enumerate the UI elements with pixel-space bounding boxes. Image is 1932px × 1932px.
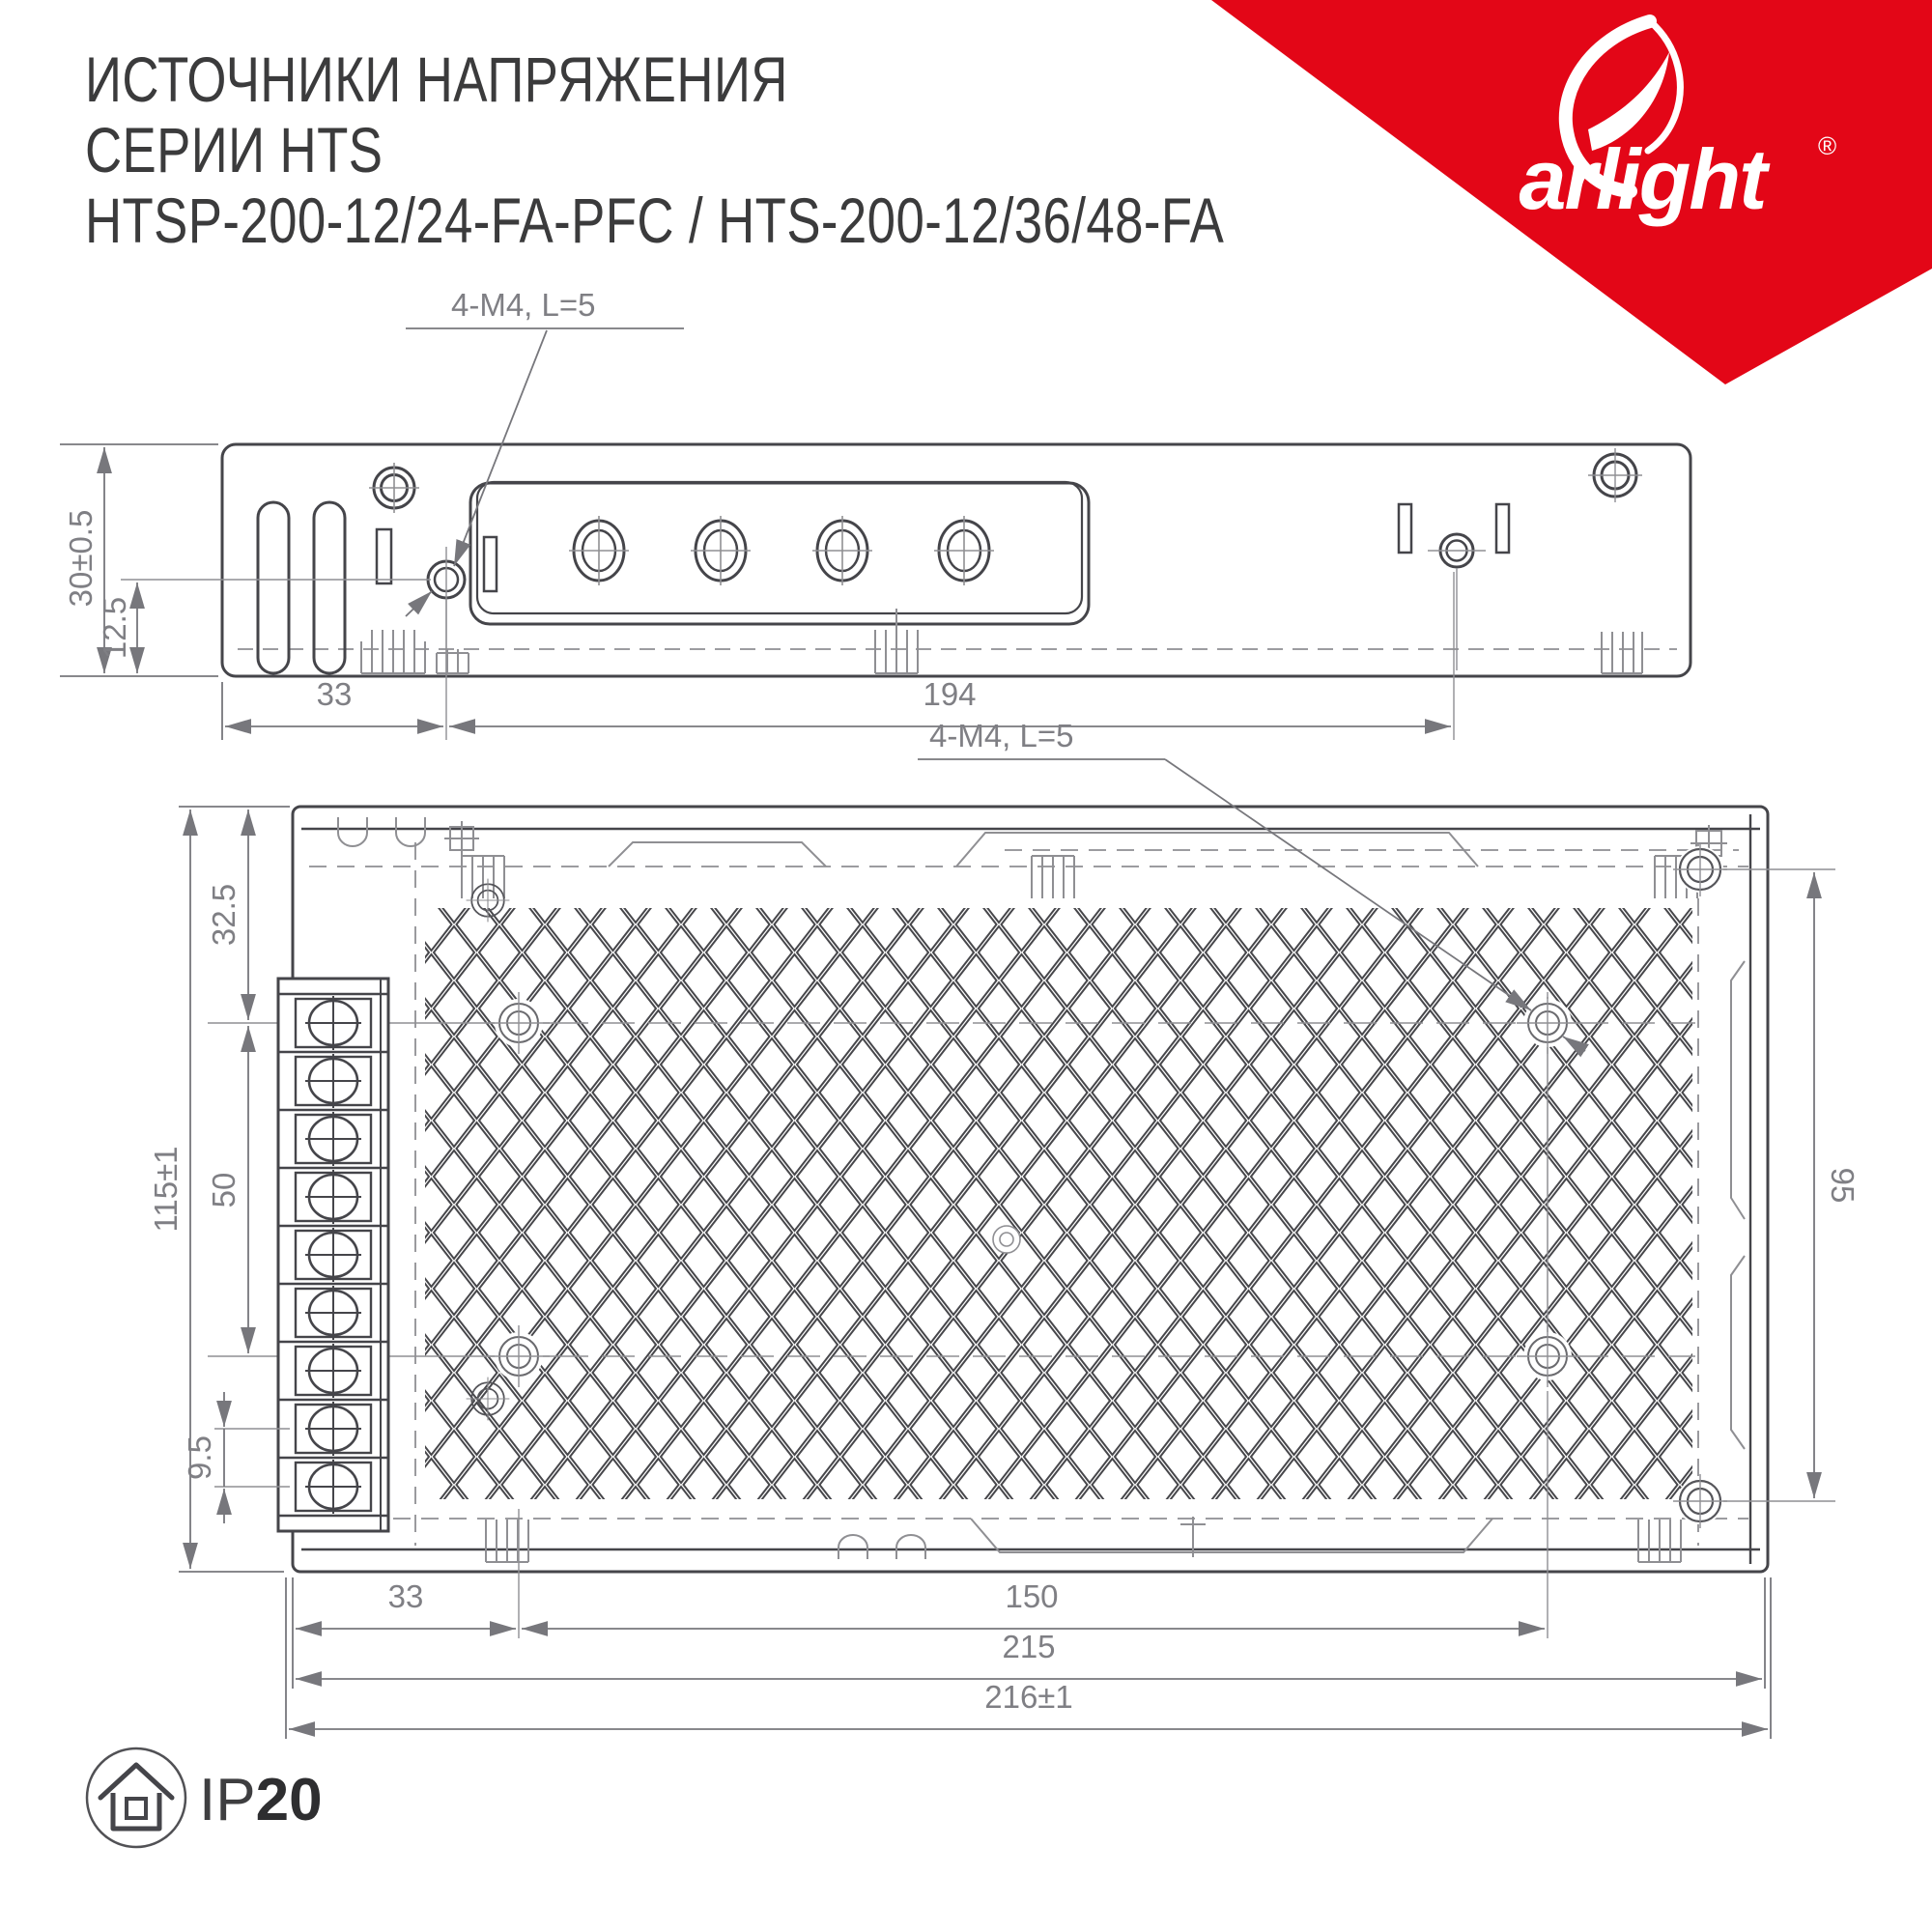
dim-top-offset: 32.5 (206, 884, 241, 946)
dim-top-height: 115±1 (148, 1146, 184, 1232)
dim-body-width: 215 (1002, 1629, 1055, 1664)
dim-side-screw-span: 194 (923, 676, 976, 712)
terminal-block (278, 979, 388, 1531)
top-screw-callout-label: 4-M4, L=5 (929, 718, 1074, 753)
dim-right-span: 95 (1825, 1168, 1861, 1204)
dim-side-height: 30±0.5 (63, 510, 99, 608)
technical-drawing: 30±0.5 12.5 33 194 4-M4, L=5 (0, 0, 1932, 1932)
ip-prefix: IP (199, 1767, 256, 1833)
vent-mesh (425, 908, 1692, 1499)
side-view-drawing: 30±0.5 12.5 33 194 4-M4, L=5 (60, 287, 1690, 740)
dim-side-screw-to-bottom: 12.5 (97, 597, 132, 659)
dim-edge-to-col1: 33 (388, 1578, 424, 1614)
ip-rating-badge: IP20 (87, 1748, 323, 1847)
dim-row-span: 50 (206, 1173, 241, 1208)
ip-value: 20 (256, 1767, 323, 1833)
indoor-house-icon (100, 1765, 172, 1829)
dim-terminal-pitch: 9.5 (182, 1435, 217, 1480)
datasheet-page: ИСТОЧНИКИ НАПРЯЖЕНИЯ СЕРИИ HTS HTSP-200-… (0, 0, 1932, 1932)
dim-col-span: 150 (1005, 1578, 1058, 1614)
dim-total-width: 216±1 (984, 1679, 1073, 1715)
side-screw-callout-label: 4-M4, L=5 (451, 287, 596, 323)
ip-rating-text: IP20 (199, 1767, 323, 1833)
top-view-drawing: 115±1 32.5 50 9.5 95 33 150 215 216±1 4-… (148, 718, 1861, 1739)
dim-side-edge-to-screw: 33 (317, 676, 353, 712)
